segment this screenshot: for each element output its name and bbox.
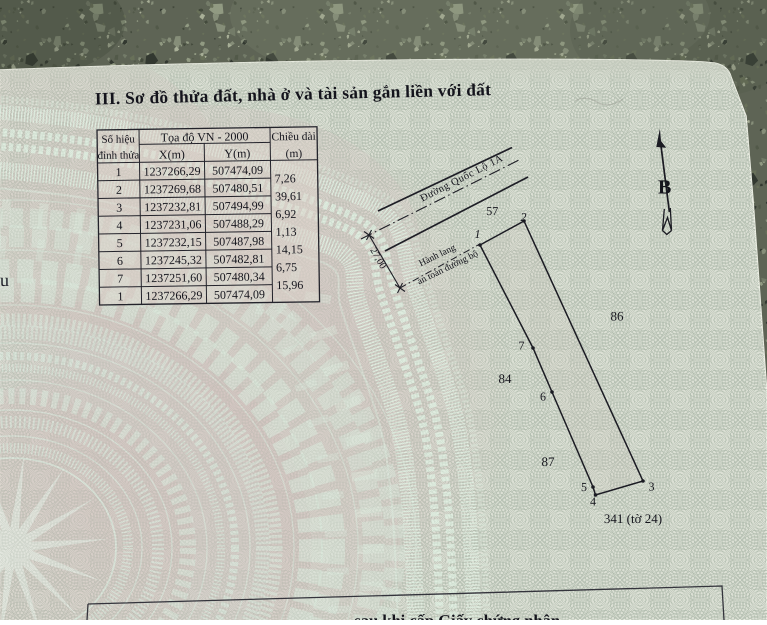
- svg-text:341 (tờ 24): 341 (tờ 24): [604, 511, 662, 526]
- svg-text:Tọa độ VN - 2000: Tọa độ VN - 2000: [161, 129, 249, 144]
- svg-text:507474,09: 507474,09: [214, 287, 265, 302]
- svg-text:1237232,15: 1237232,15: [145, 235, 202, 250]
- svg-text:57: 57: [486, 204, 498, 218]
- svg-text:u: u: [0, 270, 9, 290]
- svg-text:507488,29: 507488,29: [213, 216, 264, 231]
- svg-text:1237232,81: 1237232,81: [144, 199, 201, 214]
- svg-text:1237231,06: 1237231,06: [144, 217, 201, 232]
- svg-text:1237269,68: 1237269,68: [144, 182, 201, 197]
- svg-text:1237245,32: 1237245,32: [145, 253, 202, 268]
- svg-text:507480,51: 507480,51: [212, 181, 263, 196]
- svg-text:7,26: 7,26: [275, 171, 296, 185]
- svg-text:507494,99: 507494,99: [213, 198, 264, 213]
- svg-text:5: 5: [117, 236, 123, 250]
- svg-text:6: 6: [117, 254, 123, 268]
- svg-text:6,92: 6,92: [275, 207, 296, 221]
- svg-text:1237251,60: 1237251,60: [145, 270, 202, 285]
- svg-text:4: 4: [590, 495, 596, 509]
- svg-text:3: 3: [649, 480, 655, 494]
- svg-text:Chiều dài: Chiều dài: [271, 131, 316, 144]
- svg-text:7: 7: [117, 272, 123, 286]
- svg-text:87: 87: [542, 454, 556, 469]
- svg-text:507487,98: 507487,98: [213, 234, 264, 249]
- svg-text:507480,34: 507480,34: [214, 269, 265, 284]
- svg-text:4: 4: [116, 218, 122, 232]
- svg-text:507482,81: 507482,81: [213, 252, 264, 267]
- svg-text:3: 3: [116, 201, 122, 215]
- svg-text:6,75: 6,75: [276, 260, 297, 274]
- svg-text:B: B: [658, 176, 671, 198]
- svg-text:X(m): X(m): [159, 147, 185, 161]
- svg-text:sau khi cấp Giấy chứng nhận: sau khi cấp Giấy chứng nhận: [354, 611, 560, 620]
- svg-text:86: 86: [611, 309, 625, 324]
- svg-text:2: 2: [521, 210, 527, 224]
- svg-text:1237266,29: 1237266,29: [144, 164, 201, 179]
- svg-text:1,13: 1,13: [275, 225, 296, 239]
- svg-text:2: 2: [116, 183, 122, 197]
- svg-text:1: 1: [475, 227, 481, 241]
- svg-text:1: 1: [116, 165, 122, 179]
- svg-text:14,15: 14,15: [276, 242, 303, 256]
- svg-text:1: 1: [117, 289, 123, 303]
- svg-text:39,61: 39,61: [275, 189, 302, 203]
- svg-text:đỉnh thửa: đỉnh thửa: [97, 149, 139, 162]
- svg-text:1237266,29: 1237266,29: [145, 288, 202, 303]
- svg-text:15,96: 15,96: [276, 278, 303, 292]
- svg-text:Số hiệu: Số hiệu: [101, 133, 135, 146]
- svg-text:7: 7: [519, 339, 525, 353]
- svg-text:5: 5: [581, 480, 587, 494]
- svg-text:Y(m): Y(m): [224, 146, 250, 160]
- svg-text:6: 6: [540, 390, 546, 404]
- svg-text:(m): (m): [285, 148, 302, 160]
- svg-text:507474,09: 507474,09: [212, 163, 263, 178]
- svg-text:84: 84: [499, 371, 513, 386]
